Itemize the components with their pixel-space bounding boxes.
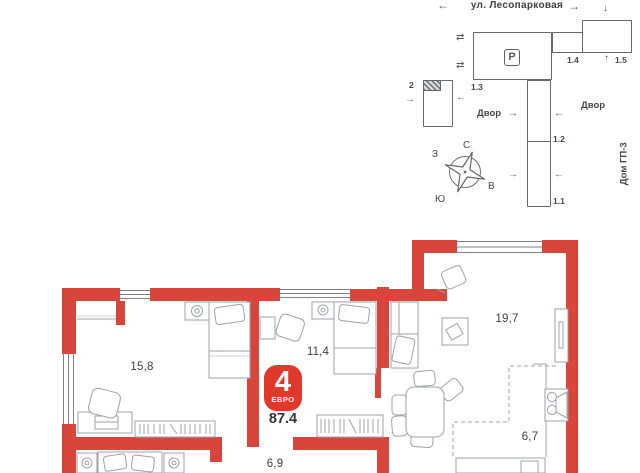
closet-line	[77, 316, 116, 319]
nightstand-icon	[312, 302, 334, 319]
room-area-label-bedroom-small: 11,4	[296, 347, 340, 359]
room-area-label-hallway: 6,9	[253, 459, 297, 471]
bed-icon	[209, 302, 250, 378]
room-area-label-kitchen: 6,7	[510, 432, 550, 444]
fridge-icon	[555, 309, 568, 362]
stove-icon	[545, 389, 568, 421]
apartment-type-badge: 4 ЕВРО	[264, 365, 302, 411]
total-area-label: 87.4	[258, 412, 308, 427]
kitchen-zone-dashed	[453, 366, 556, 458]
bed-icon	[334, 302, 376, 374]
room-area-label-living: 19,7	[485, 314, 529, 326]
tv-stand-icon	[442, 318, 468, 345]
wardrobe-icon	[135, 421, 215, 437]
screenshot-root: ← ул. Лесопарковая → P 1.3 ⇄ ⇄ 1.4 1.5 ↓…	[0, 0, 640, 473]
rooms-count: 4	[264, 368, 302, 397]
desk-icon	[260, 317, 275, 339]
nightstand-icon	[77, 453, 97, 473]
wardrobe-icon	[317, 415, 383, 437]
chair-icon	[275, 313, 306, 343]
dining-table-icon	[391, 370, 464, 448]
nightstand-icon	[164, 453, 184, 473]
sofa-icon	[391, 302, 418, 368]
furniture-layer	[0, 0, 640, 473]
room-area-label-bedroom-large: 15,8	[120, 362, 164, 374]
bed-icon	[98, 452, 162, 473]
nightstand-icon	[185, 302, 209, 320]
cabinet-icon	[456, 458, 545, 473]
chair-icon	[437, 264, 467, 293]
layout-type-label: ЕВРО	[264, 396, 302, 404]
